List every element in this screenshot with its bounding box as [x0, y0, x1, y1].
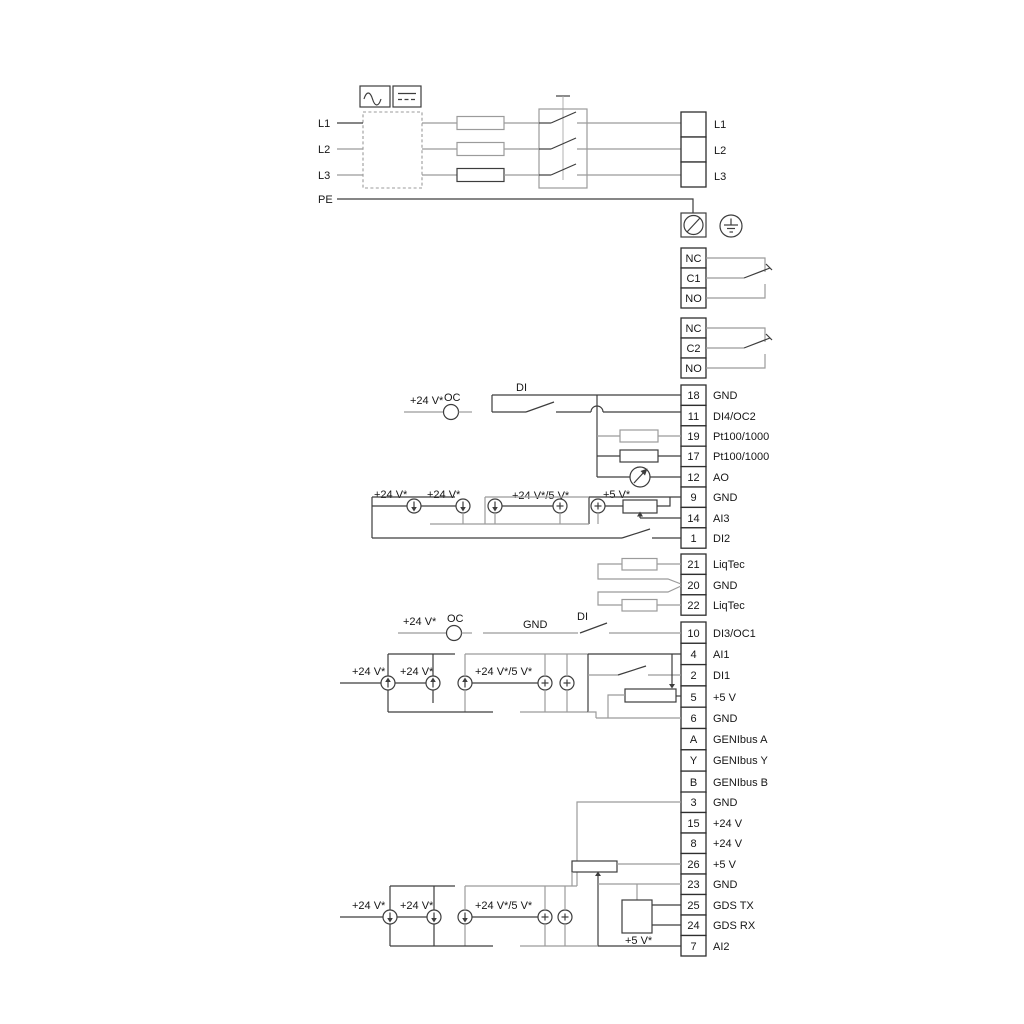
gnd-label: GND [523, 619, 548, 631]
input-l2-label: L2 [318, 144, 330, 156]
relay1-block: NC C1 NO [681, 248, 772, 308]
gds-sensor-box [622, 900, 652, 933]
voltage-sensor-icon [560, 676, 574, 690]
terminal-label: LiqTec [713, 600, 745, 612]
relay2-c2: C2 [686, 343, 700, 355]
terminal-label: GND [713, 713, 738, 725]
output-l1-label: L1 [714, 119, 726, 131]
plus24or5-label: +24 V*/5 V* [475, 666, 533, 678]
terminal-number: 1 [690, 533, 696, 545]
relay2-nc: NC [686, 323, 702, 335]
terminal-label: DI3/OC1 [713, 628, 756, 640]
relay1-c1: C1 [686, 273, 700, 285]
voltage-sensor-icon [591, 499, 605, 513]
terminal-label: DI1 [713, 670, 730, 682]
relay1-contact-blade [744, 268, 770, 278]
terminal-number: 22 [687, 600, 699, 612]
wiring-diagram: L1 L2 L3 PE [0, 0, 1024, 1024]
terminal-label: AI1 [713, 649, 730, 661]
main-switch [539, 96, 587, 188]
plus5-label: +5 V* [625, 935, 653, 947]
di2-switch-blade [622, 529, 650, 538]
oc-label: OC [447, 613, 464, 625]
current-sensor-icon [407, 499, 421, 513]
current-sensor-icon [456, 499, 470, 513]
terminal-number: Y [690, 755, 698, 767]
terminal-label: GENIbus A [713, 734, 768, 746]
terminal-label: AO [713, 472, 729, 484]
dc-symbol-box [393, 86, 421, 107]
terminal-number: 3 [690, 797, 696, 809]
terminal-label: LiqTec [713, 559, 745, 571]
terminal-number: 19 [687, 431, 699, 443]
terminal-number: A [690, 734, 698, 746]
terminal-number: 9 [690, 492, 696, 504]
terminal-number: 4 [690, 649, 696, 661]
terminal-number: 10 [687, 628, 699, 640]
terminal-number: 23 [687, 879, 699, 891]
terminal-number: 17 [687, 451, 699, 463]
potentiometer [623, 500, 657, 513]
plus24-label: +24 V* [400, 666, 434, 678]
terminal-number: 12 [687, 472, 699, 484]
plus24-label: +24 V* [400, 900, 434, 912]
power-section: L1 L2 L3 PE [318, 86, 742, 237]
terminal-label: +5 V [713, 692, 737, 704]
terminal-number: 11 [688, 411, 699, 423]
terminal-label: +24 V [713, 838, 743, 850]
current-sensor-icon [488, 499, 502, 513]
terminal-label: +24 V [713, 818, 743, 830]
plus24-label: +24 V* [410, 395, 444, 407]
fuse-l1 [457, 117, 504, 130]
earth-ground-icon [720, 215, 742, 237]
input-l3-label: L3 [318, 170, 330, 182]
current-sensor-icon [458, 910, 472, 924]
relay2-block: NC C2 NO [681, 318, 772, 378]
wiper-arrow-icon [669, 684, 675, 689]
terminal-number: 24 [687, 920, 699, 932]
terminal-number: 7 [690, 941, 696, 953]
liqtec-resistor-22 [622, 600, 657, 612]
plus24-label: +24 V* [427, 489, 461, 501]
io-block3: 10 DI3/OC1 4 AI1 2 DI1 5 +5 V 6 GND A GE… [681, 622, 768, 792]
terminal-number: 14 [687, 513, 699, 525]
wire-3-gnd [577, 802, 681, 886]
terminal-number: B [690, 777, 697, 789]
terminal-number: 15 [687, 818, 699, 830]
terminal-number: 25 [687, 900, 699, 912]
io-block4: 3 GND 15 +24 V 8 +24 V 26 +5 V 23 GND 25… [681, 792, 756, 956]
plus24-label: +24 V* [403, 616, 437, 628]
terminal-number: 2 [690, 670, 696, 682]
input-pe-label: PE [318, 194, 333, 206]
terminal-label: DI4/OC2 [713, 411, 756, 423]
current-sensor-icon [458, 676, 472, 690]
input-l1-label: L1 [318, 118, 330, 130]
terminal-number: 20 [687, 580, 699, 592]
output-l2-label: L2 [714, 145, 726, 157]
filter-box [363, 112, 422, 188]
potentiometer [572, 861, 617, 872]
relay2-no: NO [685, 363, 702, 375]
potentiometer [625, 689, 676, 702]
terminal-label: Pt100/1000 [713, 451, 769, 463]
current-sensor-icon [381, 676, 395, 690]
plus24or5-label: +24 V*/5 V* [475, 900, 533, 912]
io-block2: 21 LiqTec 20 GND 22 LiqTec [681, 554, 745, 615]
oc-label: OC [444, 392, 461, 404]
current-sensor-icon [426, 676, 440, 690]
terminal-label: GENIbus Y [713, 755, 768, 767]
di1-switch-blade [618, 666, 646, 675]
power-terminal-block: L1 L2 L3 [681, 112, 726, 187]
voltage-sensor-icon [538, 676, 552, 690]
terminal-number: 26 [687, 859, 699, 871]
terminal-number: 5 [690, 692, 696, 704]
io-block1: 18 GND 11 DI4/OC2 19 Pt100/1000 17 Pt100… [681, 385, 769, 548]
plus24-label: +24 V* [352, 666, 386, 678]
io-block2-wiring [598, 559, 681, 612]
terminal-label: Pt100/1000 [713, 431, 769, 443]
io-block3-wiring: +24 V* OC GND DI +24 V* +24 V* [340, 611, 681, 718]
terminal-label: GND [713, 879, 738, 891]
open-collector-icon [447, 626, 462, 641]
di4-switch-blade [526, 402, 554, 412]
io-block4-wiring: +5 V* +24 V* +24 V* +24 V*/5 V* [340, 802, 681, 947]
voltage-sensor-icon [538, 910, 552, 924]
terminal-label: +5 V [713, 859, 737, 871]
open-collector-icon [444, 405, 459, 420]
di-label: DI [577, 611, 588, 623]
pe-screw-terminal [681, 213, 706, 237]
terminal-label: AI3 [713, 513, 730, 525]
terminal-label: GND [713, 492, 738, 504]
relay2-contact-blade [744, 338, 770, 348]
di-label: DI [516, 382, 527, 394]
terminal-label: GDS TX [713, 900, 754, 912]
plus24-label: +24 V* [374, 489, 408, 501]
io-block1-wiring: +24 V* OC DI +24 V* +24 [372, 382, 681, 538]
output-l3-label: L3 [714, 171, 726, 183]
relay1-no: NO [685, 293, 702, 305]
terminal-number: 6 [690, 713, 696, 725]
terminal-number: 21 [687, 559, 699, 571]
current-sensor-icon [383, 910, 397, 924]
pt100-resistor-17 [620, 450, 658, 462]
fuse-l2 [457, 143, 504, 156]
terminal-number: 8 [690, 838, 696, 850]
plus5-label: +5 V* [603, 489, 631, 501]
terminal-label: GND [713, 797, 738, 809]
pe-wire [337, 199, 693, 213]
fuse-l3 [457, 169, 504, 182]
liqtec-resistor-21 [622, 559, 657, 571]
voltage-sensor-icon [553, 499, 567, 513]
terminal-label: GND [713, 580, 738, 592]
terminal-label: GENIbus B [713, 777, 768, 789]
terminal-label: DI2 [713, 533, 730, 545]
current-sensor-icon [427, 910, 441, 924]
relay1-nc: NC [686, 253, 702, 265]
pt100-resistor-19 [620, 430, 658, 442]
plus24-label: +24 V* [352, 900, 386, 912]
terminal-number: 18 [687, 390, 699, 402]
voltage-sensor-icon [558, 910, 572, 924]
terminal-label: AI2 [713, 941, 730, 953]
di3-switch-blade [580, 623, 607, 633]
terminal-label: GND [713, 390, 738, 402]
terminal-label: GDS RX [713, 920, 756, 932]
